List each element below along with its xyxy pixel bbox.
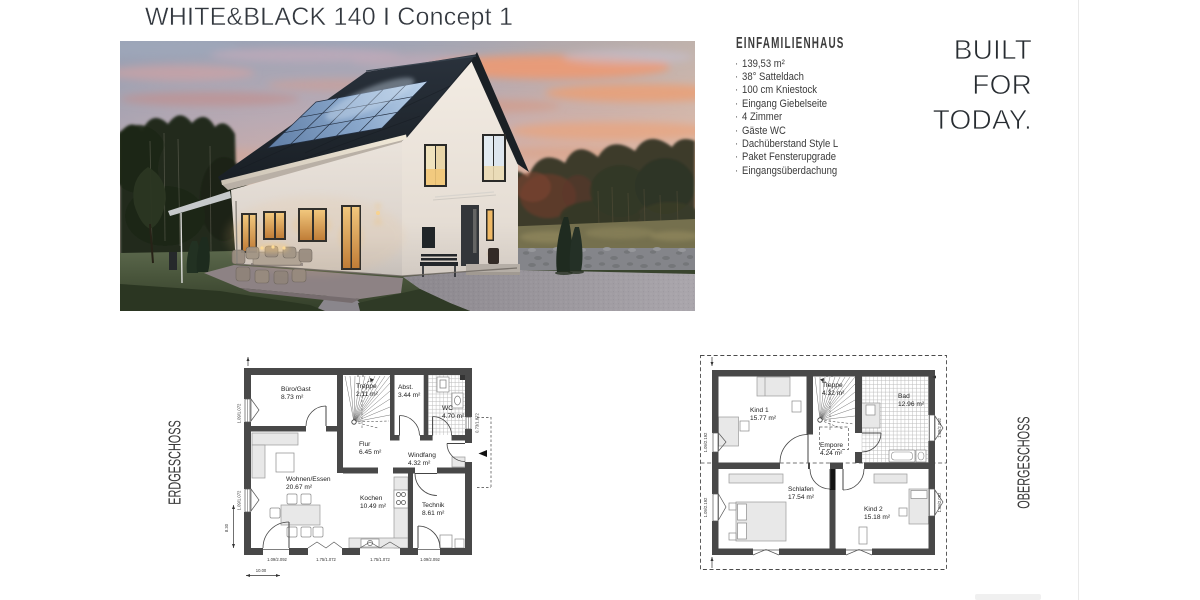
svg-text:12.96 m²: 12.96 m² (898, 401, 925, 408)
svg-text:1.09/1.072: 1.09/1.072 (237, 490, 242, 510)
svg-text:Flur: Flur (359, 441, 371, 448)
svg-text:Bad: Bad (898, 393, 910, 400)
svg-text:1.09/2.092: 1.09/2.092 (937, 417, 942, 437)
svg-text:Büro/Gast: Büro/Gast (281, 386, 311, 393)
svg-text:2.11 m²: 2.11 m² (356, 391, 379, 398)
svg-text:Empore: Empore (820, 442, 843, 449)
svg-text:1.09/2.192: 1.09/2.192 (703, 432, 708, 452)
svg-text:1.09/1.072: 1.09/1.072 (237, 403, 242, 423)
svg-text:0.73/1.872: 0.73/1.872 (475, 412, 480, 432)
svg-text:Schlafen: Schlafen (788, 486, 814, 493)
svg-text:Windfang: Windfang (408, 452, 436, 459)
svg-text:Technik: Technik (422, 502, 445, 509)
svg-text:1.09/2.192: 1.09/2.192 (703, 497, 708, 517)
svg-text:Treppe: Treppe (822, 382, 843, 389)
svg-text:8.73 m²: 8.73 m² (281, 394, 304, 401)
svg-text:1.09/2.092: 1.09/2.092 (267, 557, 287, 562)
svg-text:Treppe: Treppe (356, 383, 377, 390)
svg-text:10.00: 10.00 (256, 568, 267, 573)
svg-text:1.75/1.072: 1.75/1.072 (316, 557, 336, 562)
svg-text:4.24 m²: 4.24 m² (820, 450, 843, 457)
svg-text:20.67 m²: 20.67 m² (286, 484, 313, 491)
svg-text:4.70 m²: 4.70 m² (442, 413, 465, 420)
svg-text:Abst.: Abst. (398, 384, 413, 391)
svg-text:6.45 m²: 6.45 m² (359, 449, 382, 456)
svg-text:4.32 m²: 4.32 m² (822, 390, 845, 397)
svg-text:4.32 m²: 4.32 m² (408, 460, 431, 467)
svg-text:WC: WC (442, 405, 453, 412)
svg-text:10.49 m²: 10.49 m² (360, 503, 387, 510)
svg-text:17.54 m²: 17.54 m² (788, 494, 815, 501)
svg-text:3.44 m²: 3.44 m² (398, 392, 421, 399)
svg-text:Wohnen/Essen: Wohnen/Essen (286, 476, 331, 483)
svg-text:Kind 2: Kind 2 (864, 506, 883, 513)
svg-text:1.09/2.092: 1.09/2.092 (420, 557, 440, 562)
svg-text:Kind 1: Kind 1 (750, 407, 769, 414)
svg-text:1.09/2.092: 1.09/2.092 (937, 492, 942, 512)
svg-text:1.75/1.072: 1.75/1.072 (370, 557, 390, 562)
svg-text:8.30: 8.30 (224, 523, 229, 532)
svg-text:8.61 m²: 8.61 m² (422, 510, 445, 517)
svg-text:Kochen: Kochen (360, 495, 383, 502)
svg-text:15.77 m²: 15.77 m² (750, 415, 777, 422)
svg-text:15.18 m²: 15.18 m² (864, 514, 891, 521)
